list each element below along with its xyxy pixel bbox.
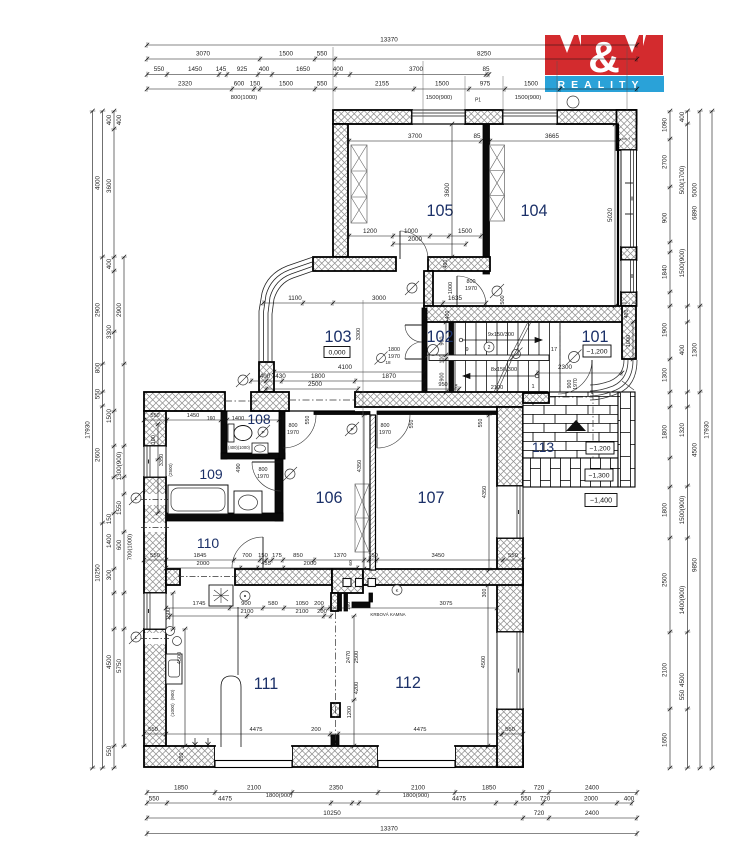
svg-text:5020: 5020	[607, 208, 614, 223]
svg-text:550: 550	[154, 66, 165, 73]
svg-text:150: 150	[346, 602, 352, 610]
svg-text:4000: 4000	[95, 176, 102, 191]
svg-text:175: 175	[272, 553, 282, 559]
svg-text:106: 106	[315, 489, 342, 507]
svg-text:720: 720	[534, 810, 545, 817]
svg-text:1300(900): 1300(900)	[116, 452, 123, 481]
svg-text:18: 18	[385, 360, 391, 365]
svg-text:1500(900): 1500(900)	[679, 249, 686, 278]
svg-text:200: 200	[317, 609, 327, 615]
svg-text:1200: 1200	[363, 228, 378, 235]
svg-text:800: 800	[259, 467, 268, 473]
svg-text:9850: 9850	[692, 558, 699, 573]
svg-text:150: 150	[106, 513, 113, 524]
svg-text:(2500): (2500)	[168, 463, 173, 477]
svg-text:1840: 1840	[662, 265, 669, 280]
svg-text:2700: 2700	[662, 155, 669, 170]
svg-text:1500(900): 1500(900)	[426, 95, 452, 101]
svg-text:2500: 2500	[354, 651, 360, 663]
svg-text:550: 550	[95, 388, 102, 399]
svg-text:2300: 2300	[558, 364, 573, 371]
svg-text:400: 400	[624, 796, 635, 803]
svg-text:1970: 1970	[573, 378, 579, 390]
svg-text:3700: 3700	[408, 133, 423, 140]
svg-text:1850: 1850	[174, 785, 189, 792]
svg-text:800: 800	[289, 423, 298, 429]
svg-text:3300: 3300	[356, 328, 362, 340]
svg-text:108: 108	[247, 411, 271, 427]
svg-text:1500: 1500	[166, 608, 172, 620]
svg-text:1500: 1500	[458, 228, 473, 235]
svg-text:800: 800	[381, 423, 390, 429]
svg-text:400: 400	[106, 114, 113, 125]
svg-text:550: 550	[150, 553, 160, 559]
svg-text:1500: 1500	[279, 81, 294, 88]
svg-text:104: 104	[520, 202, 547, 220]
svg-text:500(1700): 500(1700)	[679, 166, 686, 195]
svg-text:3300: 3300	[106, 325, 113, 340]
svg-text:800(1000): 800(1000)	[231, 95, 257, 101]
svg-text:2100: 2100	[491, 385, 503, 391]
svg-text:550: 550	[679, 689, 686, 700]
svg-text:550: 550	[179, 753, 185, 762]
svg-text:10250: 10250	[95, 564, 102, 582]
svg-text:1550: 1550	[116, 501, 123, 516]
svg-text:1200: 1200	[347, 706, 353, 718]
svg-text:800: 800	[467, 279, 476, 285]
svg-text:1970: 1970	[379, 430, 391, 436]
svg-text:110: 110	[197, 535, 220, 551]
svg-text:5000: 5000	[692, 183, 699, 198]
svg-text:KRBOVÁ KAMNA: KRBOVÁ KAMNA	[370, 612, 405, 617]
svg-text:17: 17	[551, 347, 557, 353]
svg-text:1800: 1800	[662, 503, 669, 518]
svg-text:1650: 1650	[662, 733, 669, 748]
svg-text:&: &	[588, 33, 620, 82]
svg-text:1500(900): 1500(900)	[679, 496, 686, 525]
svg-text:4500: 4500	[177, 652, 183, 664]
svg-text:1450: 1450	[187, 413, 199, 419]
svg-text:720: 720	[534, 785, 545, 792]
svg-text:3665: 3665	[545, 133, 560, 140]
svg-text:−1,400: −1,400	[590, 496, 612, 505]
svg-text:1970: 1970	[257, 474, 269, 480]
svg-text:3450: 3450	[432, 553, 445, 559]
svg-text:2155: 2155	[375, 81, 390, 88]
svg-text:0,000: 0,000	[328, 350, 345, 357]
svg-text:1400: 1400	[106, 534, 113, 549]
svg-text:400: 400	[624, 310, 630, 319]
svg-text:430: 430	[275, 373, 286, 380]
svg-text:1800: 1800	[388, 347, 400, 353]
svg-text:9x150/300: 9x150/300	[488, 332, 514, 338]
svg-text:1000: 1000	[626, 335, 632, 347]
svg-text:2100: 2100	[411, 785, 426, 792]
svg-text:150: 150	[258, 553, 268, 559]
svg-text:60: 60	[348, 560, 354, 566]
svg-text:109: 109	[199, 466, 223, 482]
svg-text:1300: 1300	[662, 368, 669, 383]
svg-text:103: 103	[324, 328, 351, 346]
svg-text:1000: 1000	[448, 282, 454, 294]
svg-text:1845: 1845	[194, 553, 207, 559]
svg-text:3070: 3070	[196, 51, 211, 58]
svg-text:13370: 13370	[380, 37, 398, 44]
svg-text:1000: 1000	[404, 228, 419, 235]
svg-text:85: 85	[473, 133, 481, 140]
svg-text:1400(900): 1400(900)	[679, 586, 686, 615]
svg-text:2000: 2000	[304, 561, 317, 567]
svg-text:4475: 4475	[414, 727, 427, 733]
svg-text:1: 1	[531, 384, 534, 390]
svg-text:1450: 1450	[188, 66, 203, 73]
svg-text:580: 580	[268, 601, 278, 607]
svg-text:400: 400	[259, 66, 270, 73]
svg-text:(1000): (1000)	[170, 703, 175, 717]
svg-text:P: P	[261, 430, 264, 435]
svg-text:1500: 1500	[106, 409, 113, 424]
svg-text:1870: 1870	[382, 373, 397, 380]
svg-text:400: 400	[116, 114, 123, 125]
svg-text:3700: 3700	[409, 66, 424, 73]
svg-text:150: 150	[250, 81, 261, 88]
svg-text:2400: 2400	[585, 810, 600, 817]
svg-text:4475: 4475	[250, 727, 263, 733]
svg-text:925: 925	[237, 66, 248, 73]
svg-text:975: 975	[480, 81, 491, 88]
svg-text:4500: 4500	[481, 656, 487, 668]
svg-text:85: 85	[482, 66, 490, 73]
svg-text:1800: 1800	[311, 373, 326, 380]
svg-text:P: P	[350, 427, 353, 432]
svg-text:3350: 3350	[159, 454, 165, 466]
svg-text:400: 400	[679, 344, 686, 355]
svg-text:2500: 2500	[308, 381, 323, 388]
svg-text:1800: 1800	[662, 425, 669, 440]
svg-text:L: L	[135, 635, 138, 640]
svg-text:300: 300	[106, 569, 113, 580]
svg-text:3000: 3000	[372, 295, 387, 302]
svg-text:145: 145	[216, 66, 227, 73]
svg-text:2000: 2000	[408, 236, 423, 243]
svg-text:K: K	[396, 588, 399, 593]
svg-text:L: L	[135, 496, 138, 501]
svg-text:4350: 4350	[357, 460, 363, 472]
svg-text:1900: 1900	[662, 323, 669, 338]
svg-text:2100: 2100	[241, 609, 254, 615]
svg-text:9: 9	[465, 347, 468, 353]
svg-text:105: 105	[426, 202, 453, 220]
svg-text:400: 400	[445, 311, 451, 320]
svg-text:4500: 4500	[679, 673, 686, 688]
svg-text:(400)(1000): (400)(1000)	[228, 445, 250, 450]
svg-text:1370: 1370	[334, 553, 347, 559]
svg-text:3600: 3600	[444, 183, 451, 198]
svg-text:550: 550	[149, 796, 160, 803]
svg-text:2100: 2100	[296, 609, 309, 615]
svg-text:900: 900	[440, 373, 446, 382]
svg-text:600: 600	[234, 81, 245, 88]
svg-text:1500(900): 1500(900)	[515, 95, 541, 101]
svg-text:1400: 1400	[232, 416, 244, 422]
svg-text:2100: 2100	[247, 785, 262, 792]
svg-text:−1,200: −1,200	[587, 349, 608, 356]
svg-text:5750: 5750	[116, 659, 123, 674]
svg-text:700: 700	[242, 553, 252, 559]
svg-text:2500: 2500	[662, 573, 669, 588]
svg-text:455: 455	[261, 561, 271, 567]
svg-text:1800(900): 1800(900)	[403, 793, 429, 799]
svg-text:900: 900	[662, 212, 669, 223]
svg-text:550: 550	[150, 413, 159, 419]
svg-text:400: 400	[106, 258, 113, 269]
svg-text:720: 720	[540, 796, 551, 803]
svg-text:1320: 1320	[679, 423, 686, 438]
svg-text:2000: 2000	[197, 561, 210, 567]
svg-text:900: 900	[241, 601, 251, 607]
svg-text:1970: 1970	[287, 430, 299, 436]
svg-text:550: 550	[409, 420, 415, 429]
svg-text:850: 850	[293, 553, 303, 559]
svg-text:4100: 4100	[338, 364, 353, 371]
svg-text:1100: 1100	[288, 295, 302, 302]
svg-text:107: 107	[417, 489, 444, 507]
svg-text:4350: 4350	[482, 486, 488, 498]
svg-text:1650: 1650	[296, 66, 311, 73]
svg-text:550: 550	[148, 727, 158, 733]
svg-text:8250: 8250	[477, 51, 492, 58]
svg-text:2000: 2000	[584, 796, 599, 803]
svg-text:13370: 13370	[380, 826, 398, 833]
svg-text:−1,300: −1,300	[589, 473, 610, 480]
svg-text:2: 2	[488, 345, 491, 351]
svg-text:200: 200	[314, 601, 324, 607]
svg-text:550: 550	[521, 796, 532, 803]
svg-text:550: 550	[305, 416, 311, 425]
svg-text:2320: 2320	[178, 81, 193, 88]
svg-text:4500: 4500	[692, 443, 699, 458]
svg-text:4475: 4475	[452, 796, 467, 803]
svg-text:1800(900): 1800(900)	[266, 793, 292, 799]
svg-text:3600: 3600	[106, 179, 113, 194]
svg-text:1500: 1500	[524, 81, 539, 88]
svg-text:1090: 1090	[662, 118, 669, 133]
svg-text:400: 400	[443, 260, 449, 269]
svg-text:2100: 2100	[662, 663, 669, 678]
svg-text:400: 400	[260, 373, 271, 380]
svg-text:2400: 2400	[585, 785, 600, 792]
svg-text:(900): (900)	[170, 689, 175, 700]
svg-text:1500: 1500	[279, 51, 294, 58]
svg-text:−1,200: −1,200	[590, 446, 611, 453]
svg-text:200: 200	[311, 727, 321, 733]
svg-text:950: 950	[438, 382, 447, 388]
svg-text:111: 111	[254, 675, 279, 693]
svg-text:700(1000): 700(1000)	[128, 534, 134, 560]
svg-text:150: 150	[368, 553, 378, 559]
svg-text:2900: 2900	[95, 303, 102, 318]
svg-text:2470: 2470	[346, 651, 352, 663]
svg-text:1300: 1300	[692, 343, 699, 358]
svg-text:101: 101	[581, 328, 608, 346]
svg-text:1500: 1500	[435, 81, 450, 88]
svg-text:2600: 2600	[95, 448, 102, 463]
svg-text:8x150/300: 8x150/300	[491, 367, 517, 373]
svg-text:550: 550	[317, 51, 328, 58]
svg-text:1850: 1850	[482, 785, 497, 792]
svg-text:3075: 3075	[440, 601, 453, 607]
svg-text:500: 500	[500, 295, 506, 304]
svg-text:17930: 17930	[85, 421, 92, 439]
svg-text:2900: 2900	[116, 303, 123, 318]
svg-text:4200: 4200	[354, 682, 360, 694]
svg-text:17930: 17930	[704, 421, 711, 439]
svg-text:112: 112	[395, 674, 421, 692]
svg-text:6890: 6890	[692, 206, 699, 221]
svg-text:113: 113	[532, 439, 555, 455]
svg-text:100: 100	[440, 355, 446, 364]
svg-text:1100: 1100	[151, 435, 157, 447]
svg-text:1745: 1745	[193, 601, 206, 607]
svg-text:300: 300	[482, 589, 488, 598]
svg-text:1050: 1050	[296, 601, 309, 607]
svg-text:10250: 10250	[323, 810, 341, 817]
svg-text:600: 600	[116, 539, 123, 550]
svg-text:4475: 4475	[218, 796, 233, 803]
svg-text:800: 800	[95, 362, 102, 373]
svg-text:550: 550	[505, 727, 515, 733]
svg-text:1970: 1970	[465, 286, 477, 292]
svg-text:4500: 4500	[106, 655, 113, 670]
svg-text:400: 400	[333, 66, 344, 73]
svg-text:550: 550	[508, 553, 518, 559]
svg-text:400: 400	[679, 111, 686, 122]
svg-text:2350: 2350	[329, 785, 344, 792]
svg-text:550: 550	[317, 81, 328, 88]
svg-text:550: 550	[106, 745, 113, 756]
svg-text:490: 490	[236, 463, 242, 472]
svg-text:1635: 1635	[448, 295, 463, 302]
svg-text:550: 550	[478, 419, 484, 428]
svg-text:P1: P1	[475, 98, 481, 104]
svg-text:160: 160	[207, 416, 216, 422]
